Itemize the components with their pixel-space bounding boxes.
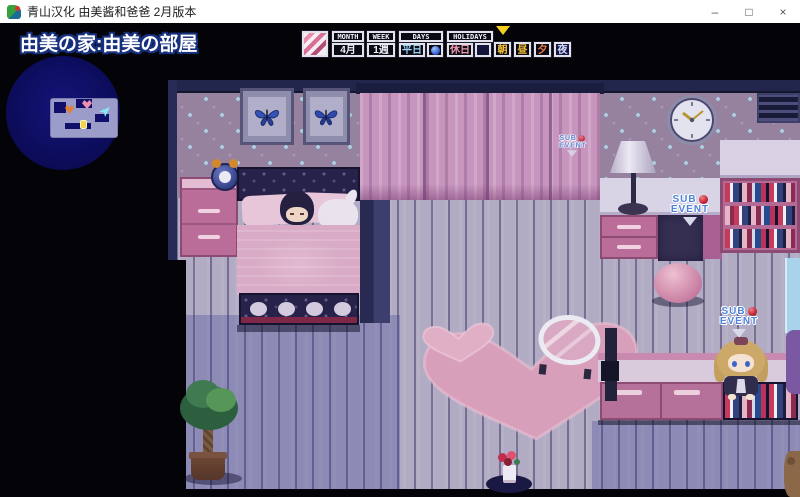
calendar-hud: MONTH 4月 WEEK 1週 DAYS 平日 HOLIDAYS 休日 ▼ 朝… xyxy=(302,30,592,60)
potted-plant xyxy=(178,378,242,488)
mirror-leg xyxy=(539,364,547,375)
book-row xyxy=(725,229,795,248)
desk-drawers xyxy=(600,215,658,259)
pole-bracket xyxy=(601,361,619,381)
drawer-divider xyxy=(182,223,236,225)
window-title: 青山汉化 由美酱和爸爸 2月版本 xyxy=(27,3,196,20)
footboard-rail xyxy=(241,317,357,323)
sub-event-label: EVENT xyxy=(710,317,768,327)
lamp-shade xyxy=(610,141,656,173)
flower-bloom xyxy=(504,458,512,466)
sub-event-marker-doll[interactable]: SUB EVENT xyxy=(710,307,768,338)
hud-holiday-empty-slot xyxy=(475,43,491,57)
teddy-ear xyxy=(787,457,795,465)
alarm-bell-icon xyxy=(212,159,221,168)
sub-event-marker-curtain[interactable]: SUB EVENT xyxy=(559,135,585,157)
bookshelf-top xyxy=(720,140,800,178)
alarm-clock xyxy=(211,163,239,191)
table-lamp xyxy=(610,141,656,221)
footboard-medallion xyxy=(306,302,323,316)
minimap-marker-orange xyxy=(65,105,74,114)
doll-foot xyxy=(746,394,754,400)
desk-shadow xyxy=(598,420,800,425)
closed-eye xyxy=(300,213,304,215)
butterfly-frame-right xyxy=(303,88,350,145)
lamp-base xyxy=(618,203,648,215)
event-pointer-icon xyxy=(567,150,577,156)
hud-time-indicator xyxy=(496,26,510,35)
footboard-medallion xyxy=(278,302,295,316)
doll-foot xyxy=(728,394,736,400)
curtain-fold-divider xyxy=(549,93,552,200)
window-controls: – □ × xyxy=(698,0,800,23)
drawer-divider xyxy=(602,236,656,238)
teddy-bear-partial xyxy=(784,451,800,497)
minimap-wall xyxy=(54,102,66,113)
curtain-fold-divider xyxy=(486,93,489,200)
doll-dress xyxy=(724,376,758,396)
bed-blanket xyxy=(237,225,360,295)
hud-week-header: WEEK xyxy=(367,31,395,42)
minimize-button[interactable]: – xyxy=(698,0,732,23)
doll-bow xyxy=(734,337,748,345)
sub-event-label: EVENT xyxy=(662,205,718,215)
close-button[interactable]: × xyxy=(766,0,800,23)
plant-pot xyxy=(191,458,225,480)
doll-eye xyxy=(732,361,737,367)
butterfly-icon xyxy=(252,101,282,131)
minimap-player-marker xyxy=(80,120,87,129)
round-mirror[interactable] xyxy=(535,312,603,376)
chibi-doll[interactable] xyxy=(714,340,768,400)
sub-event-label: EVENT xyxy=(559,142,585,149)
window-titlebar[interactable]: 青山汉化 由美酱和爸爸 2月版本 – □ × xyxy=(0,0,800,23)
bookshelf-frame xyxy=(720,178,800,253)
location-label: 由美の家:由美の部屋 xyxy=(20,29,197,56)
closed-eye xyxy=(290,213,294,215)
event-orb-icon xyxy=(748,307,757,316)
drawer-divider xyxy=(660,384,662,418)
event-orb-icon xyxy=(699,195,708,204)
drawer-handle xyxy=(198,235,220,239)
sub-event-marker-desk[interactable]: SUB EVENT xyxy=(662,195,718,226)
footboard-medallion xyxy=(250,302,267,316)
bed[interactable] xyxy=(237,167,360,331)
wall-divider xyxy=(360,200,390,323)
minimap-wall xyxy=(65,123,91,129)
bed-footboard xyxy=(239,293,359,325)
maximize-button[interactable]: □ xyxy=(732,0,766,23)
hud-time-evening: 夕 xyxy=(534,42,551,57)
hud-week-value: 1週 xyxy=(367,43,395,57)
drawer-handle xyxy=(674,390,700,395)
event-pointer-icon xyxy=(683,217,697,226)
wall-poster xyxy=(785,258,800,333)
vase-body xyxy=(503,465,516,483)
long-desk-drawers xyxy=(600,382,723,420)
minimap-wall xyxy=(95,114,109,122)
plant-foliage xyxy=(206,388,236,412)
flower-vase[interactable] xyxy=(486,451,534,495)
mirror-leg xyxy=(583,369,591,380)
drawer-handle xyxy=(617,225,641,229)
wall-clock xyxy=(664,92,720,148)
minimap-room xyxy=(50,98,118,138)
left-wall-edge xyxy=(168,80,177,260)
sleeping-girl-face xyxy=(286,207,308,222)
flower-leaf xyxy=(514,459,520,465)
butterfly-frame-left xyxy=(240,88,294,145)
bed-shadow xyxy=(237,325,360,332)
footboard-medallion xyxy=(334,302,351,316)
app-icon xyxy=(7,5,21,19)
hud-time-morning: 朝 xyxy=(494,42,511,57)
hud-calendar-icon xyxy=(302,31,328,57)
book-row xyxy=(725,206,795,225)
drawer-handle xyxy=(198,209,220,213)
alarm-face xyxy=(219,171,231,183)
purple-plush xyxy=(786,330,800,394)
pouf-stool xyxy=(654,263,702,303)
hud-holidays-value: 休日 xyxy=(447,43,473,57)
curtain-fold-divider xyxy=(423,93,426,200)
minimap xyxy=(6,56,120,170)
butterfly-icon xyxy=(312,102,340,130)
doll-face xyxy=(728,354,754,372)
drawer-handle xyxy=(617,245,641,249)
hud-month-header: MONTH xyxy=(332,31,364,42)
hud-time-night: 夜 xyxy=(554,42,571,57)
air-vent xyxy=(757,93,800,123)
doll-eye xyxy=(745,361,750,367)
bookshelf[interactable] xyxy=(720,140,800,253)
hud-time-noon: 昼 xyxy=(514,42,531,57)
hud-holidays-header: HOLIDAYS xyxy=(447,31,493,42)
hud-days-header: DAYS xyxy=(399,31,443,42)
mirror-glass xyxy=(536,312,603,368)
long-desk-top xyxy=(598,353,800,382)
book-row xyxy=(725,183,795,202)
game-canvas[interactable]: SUB EVENT xyxy=(0,23,800,497)
hud-day-orb-icon xyxy=(427,43,443,57)
long-desk xyxy=(598,353,800,420)
screenshot-root: 青山汉化 由美酱和爸爸 2月版本 – □ × xyxy=(0,0,800,497)
drawer-handle xyxy=(616,390,642,395)
hud-month-value: 4月 xyxy=(332,43,364,57)
doll-apron xyxy=(736,379,746,393)
hud-days-value: 平日 xyxy=(399,43,425,57)
